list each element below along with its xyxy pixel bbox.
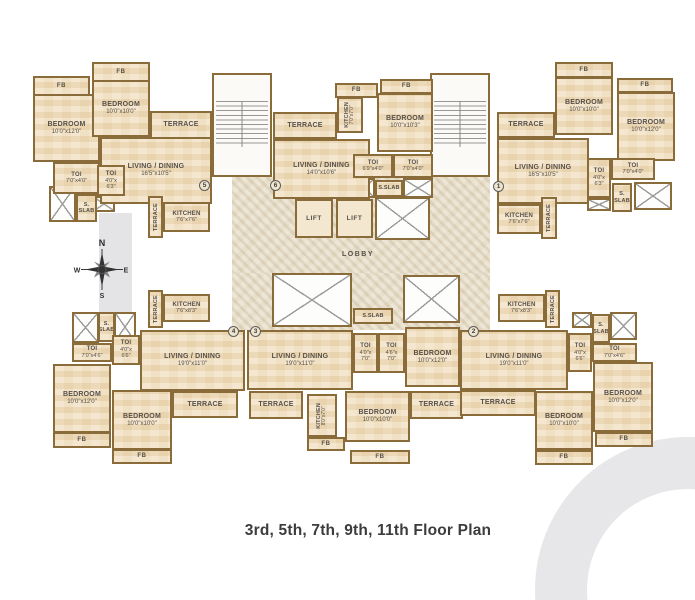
- f5-terrace-2-label: TERRACE: [152, 203, 158, 231]
- f5-bedroom-2: BEDROOM10'0"x10'0": [92, 80, 150, 137]
- f3-toi-2-label: TOI: [386, 343, 397, 350]
- core-duct-bottom-left: [272, 273, 352, 327]
- f5-sslab: S. SLAB: [76, 194, 97, 222]
- f4-terrace-2-stack: TERRACE: [152, 295, 158, 323]
- f6-kitchen-dims: 7'0"x7'0": [350, 105, 356, 124]
- f3-kitchen: KITCHEN8'0"x7'0": [307, 394, 337, 437]
- f6-fb-2-label: FB: [402, 83, 411, 90]
- f3-kitchen-stack: KITCHEN8'0"x7'0": [316, 403, 328, 429]
- f5-bedroom-2-label: BEDROOM: [102, 101, 140, 109]
- f1-terrace-2-label: TERRACE: [546, 204, 552, 232]
- f4-living-dims: 19'0"x11'0": [178, 361, 207, 368]
- f3-bedroom-2-dims: 10'0"x10'0": [363, 417, 393, 424]
- f3-bedroom-1-dims: 10'0"x12'0": [418, 358, 448, 365]
- f4-terrace-1-label: TERRACE: [187, 401, 222, 409]
- f3-toi-1: TOI4'0"x 7'0": [353, 333, 378, 373]
- f3-toi-2-dims: 4'6"x 7'0": [386, 350, 398, 362]
- f2-toi-1: TOI4'0"x 6'6": [568, 333, 592, 372]
- f1-bedroom-2-dims: 10'0"x12'0": [631, 127, 661, 134]
- flat-marker-1: 1: [493, 181, 504, 192]
- f6-duct-2: [403, 178, 433, 198]
- f2-fb-1: FB: [595, 432, 653, 447]
- f2-terrace-2-label: TERRACE: [549, 295, 555, 323]
- f2-kitchen-label: KITCHEN: [507, 302, 535, 309]
- f4-terrace-2-label: TERRACE: [152, 295, 158, 323]
- compass-e: E: [124, 268, 129, 275]
- f5-terrace-1-label: TERRACE: [163, 121, 198, 129]
- f3-terrace-1-label: TERRACE: [258, 401, 293, 409]
- f1-bedroom-2: BEDROOM10'0"x12'0": [617, 92, 675, 161]
- f6-kitchen: KITCHEN7'0"x7'0": [337, 97, 363, 133]
- f1-sslab-label: S. SLAB: [614, 191, 630, 203]
- f3-fb-1: FB: [307, 437, 345, 451]
- f1-duct-2: [587, 198, 611, 211]
- flat-marker-3: 3: [250, 326, 261, 337]
- f6-bedroom-dims: 10'0"x10'3": [390, 123, 420, 130]
- compass-w: W: [74, 268, 81, 275]
- f5-toi-1-label: TOI: [71, 172, 82, 179]
- f1-toi-2-label: TOI: [628, 163, 639, 170]
- core-duct-top: [375, 197, 430, 240]
- f6-toi-1-label: TOI: [368, 160, 379, 167]
- f2-bedroom-2-dims: 10'0"x10'0": [549, 421, 579, 428]
- f1-terrace-2-stack: TERRACE: [546, 204, 552, 232]
- f6-toi-2: TOI7'0"x4'0": [393, 154, 433, 178]
- f4-toi-1: TOI7'0"x4'6": [72, 343, 112, 362]
- f2-kitchen-dims: 7'6"x8'3": [511, 308, 532, 314]
- f3-toi-1-dims: 4'0"x 7'0": [360, 350, 372, 362]
- f3-terrace-1: TERRACE: [249, 391, 303, 419]
- f1-terrace-1-label: TERRACE: [508, 121, 543, 129]
- f4-fb-1: FB: [53, 432, 111, 448]
- f2-terrace-1-label: TERRACE: [480, 399, 515, 407]
- lift-1-label: LIFT: [306, 215, 322, 222]
- f3-bedroom-1: BEDROOM10'0"x12'0": [405, 327, 460, 387]
- f3-fb-2-label: FB: [375, 454, 384, 461]
- f4-bedroom-1: BEDROOM10'0"x12'0": [53, 364, 111, 433]
- f4-living: LIVING / DINING19'0"x11'0": [140, 330, 245, 391]
- f5-bedroom-2-dims: 10'0"x10'0": [106, 109, 136, 116]
- f2-sslab: S. SLAB: [592, 314, 610, 343]
- f2-bedroom-1-dims: 10'0"x12'0": [608, 398, 638, 405]
- compass-n: N: [99, 238, 106, 248]
- f2-bedroom-2-label: BEDROOM: [545, 413, 583, 421]
- f3-living-dims: 19'0"x11'0": [285, 361, 314, 368]
- f2-fb-2-label: FB: [559, 454, 568, 461]
- f5-toi-1-dims: 7'0"x4'0": [66, 178, 87, 184]
- f4-toi-2: TOI4'0"x 6'6": [112, 335, 140, 365]
- f4-toi-2-label: TOI: [121, 340, 132, 347]
- lift-1: LIFT: [295, 199, 333, 238]
- f1-kitchen-label: KITCHEN: [505, 213, 533, 220]
- f3-living-label: LIVING / DINING: [272, 353, 329, 361]
- f4-toi-2-dims: 4'0"x 6'6": [120, 347, 132, 359]
- f5-bedroom-1-label: BEDROOM: [48, 121, 86, 129]
- f4-bedroom-2-label: BEDROOM: [123, 413, 161, 421]
- floor-plan-canvas: LIFT LIFT LOBBY S.SLAB 1 2 3 4 5 6 N E S…: [0, 0, 695, 600]
- staircase-left: [212, 73, 272, 177]
- f6-toi-2-dims: 7'0"x4'0": [403, 166, 424, 172]
- f5-fb-2: FB: [92, 62, 150, 82]
- f6-fb-1-label: FB: [352, 87, 361, 94]
- f2-duct-1: [610, 312, 637, 340]
- f1-duct-1: [634, 182, 672, 210]
- f5-fb-2-label: FB: [116, 69, 125, 76]
- f2-bedroom-1-label: BEDROOM: [604, 390, 642, 398]
- f1-toi-1-label: TOI: [594, 168, 605, 175]
- f3-bedroom-1-label: BEDROOM: [414, 350, 452, 358]
- staircase-right: [430, 73, 490, 177]
- f6-sslab: S.SLAB: [375, 180, 403, 197]
- lift-2: LIFT: [336, 199, 373, 238]
- f2-living: LIVING / DINING19'0"x11'0": [460, 330, 568, 390]
- f6-bedroom-label: BEDROOM: [386, 115, 424, 123]
- f3-living: LIVING / DINING19'0"x11'0": [247, 330, 353, 390]
- f4-bedroom-2: BEDROOM10'0"x10'0": [112, 390, 172, 450]
- f1-toi-2-dims: 7'0"x4'0": [623, 169, 644, 175]
- f5-bedroom-1: BEDROOM10'0"x12'0": [33, 94, 100, 162]
- f2-duct-0: [572, 312, 592, 328]
- f2-terrace-1: TERRACE: [460, 390, 536, 416]
- core-duct-bottom-right: [403, 275, 460, 323]
- f5-kitchen: KITCHEN7'6"x7'6": [163, 202, 210, 232]
- compass-s: S: [100, 293, 105, 300]
- f5-fb-1-label: FB: [57, 83, 66, 90]
- f5-living-label: LIVING / DINING: [128, 163, 185, 171]
- f3-bedroom-2-label: BEDROOM: [359, 409, 397, 417]
- f1-fb-2: FB: [617, 78, 673, 93]
- f1-fb-2-label: FB: [640, 82, 649, 89]
- f2-bedroom-1: BEDROOM10'0"x12'0": [593, 362, 653, 432]
- f1-bedroom-1-label: BEDROOM: [565, 99, 603, 107]
- f5-toi-1: TOI7'0"x4'0": [53, 162, 100, 194]
- f4-fb-2: FB: [112, 449, 172, 464]
- f2-toi-2: TOI7'0"x4'6": [592, 343, 637, 362]
- staircase-left-treads: [216, 101, 268, 147]
- f1-bedroom-1-dims: 10'0"x10'0": [569, 107, 599, 114]
- f6-living-label: LIVING / DINING: [293, 162, 350, 170]
- f6-bedroom: BEDROOM10'0"x10'3": [377, 93, 433, 152]
- f2-living-label: LIVING / DINING: [486, 353, 543, 361]
- f1-bedroom-2-label: BEDROOM: [627, 119, 665, 127]
- f1-living: LIVING / DINING16'5"x10'5": [497, 138, 589, 204]
- staircase-right-treads: [434, 101, 486, 147]
- f1-kitchen: KITCHEN7'6"x7'6": [497, 204, 541, 234]
- f1-terrace-1: TERRACE: [497, 112, 555, 138]
- f1-fb-1: FB: [555, 62, 613, 78]
- flat-marker-5: 5: [199, 180, 210, 191]
- f4-fb-1-label: FB: [77, 437, 86, 444]
- f5-toi-2-label: TOI: [106, 171, 117, 178]
- f5-sslab-label: S. SLAB: [79, 202, 95, 214]
- f6-toi-1-dims: 6'9"x4'0": [363, 166, 384, 172]
- f1-toi-2: TOI7'0"x4'0": [611, 158, 655, 180]
- f6-toi-2-label: TOI: [408, 160, 419, 167]
- f3-toi-2: TOI4'6"x 7'0": [378, 333, 405, 373]
- f4-bedroom-1-label: BEDROOM: [63, 391, 101, 399]
- f5-terrace-1: TERRACE: [150, 111, 212, 139]
- f4-toi-1-dims: 7'0"x4'6": [82, 353, 103, 359]
- f6-living-dims: 14'0"x10'6": [307, 170, 337, 177]
- f1-toi-1: TOI4'0"x 6'3": [587, 158, 611, 198]
- f5-fb-1: FB: [33, 76, 90, 96]
- f4-terrace-1: TERRACE: [172, 391, 238, 418]
- f4-kitchen-dims: 7'6"x8'3": [176, 308, 197, 314]
- f3-toi-1-label: TOI: [360, 343, 371, 350]
- f6-toi-1: TOI6'9"x4'0": [353, 154, 393, 178]
- flat-marker-6: 6: [270, 180, 281, 191]
- f4-bedroom-1-dims: 10'0"x12'0": [67, 399, 97, 406]
- f4-toi-1-label: TOI: [87, 346, 98, 353]
- f4-kitchen-label: KITCHEN: [172, 302, 200, 309]
- f1-terrace-2: TERRACE: [541, 197, 557, 239]
- f1-sslab: S. SLAB: [612, 183, 632, 212]
- f3-terrace-2: TERRACE: [410, 391, 463, 419]
- f4-duct-1: [72, 312, 99, 343]
- f6-sslab-label: S.SLAB: [378, 185, 399, 191]
- f2-fb-2: FB: [535, 450, 593, 465]
- f6-kitchen-stack: KITCHEN7'0"x7'0": [344, 102, 356, 128]
- core-s-slab: S.SLAB: [353, 308, 393, 324]
- flat-marker-4: 4: [228, 326, 239, 337]
- f3-fb-2: FB: [350, 450, 410, 464]
- f3-fb-1-label: FB: [321, 441, 330, 448]
- f2-kitchen: KITCHEN7'6"x8'3": [498, 294, 545, 322]
- f2-living-dims: 19'0"x11'0": [499, 361, 528, 368]
- f4-fb-2-label: FB: [137, 453, 146, 460]
- f5-terrace-2: TERRACE: [148, 196, 163, 238]
- f4-bedroom-2-dims: 10'0"x10'0": [127, 421, 157, 428]
- f5-bedroom-1-dims: 10'0"x12'0": [52, 129, 82, 136]
- f2-terrace-2: TERRACE: [545, 290, 560, 328]
- f3-kitchen-dims: 8'0"x7'0": [322, 406, 328, 425]
- f5-terrace-2-stack: TERRACE: [152, 203, 158, 231]
- f2-toi-2-dims: 7'0"x4'6": [604, 353, 625, 359]
- f3-bedroom-2: BEDROOM10'0"x10'0": [345, 391, 410, 442]
- f1-toi-1-dims: 4'0"x 6'3": [593, 175, 605, 187]
- f4-kitchen: KITCHEN7'6"x8'3": [163, 294, 210, 322]
- f2-sslab-label: S. SLAB: [593, 322, 609, 334]
- f4-terrace-2: TERRACE: [148, 290, 163, 328]
- f6-terrace-label: TERRACE: [287, 122, 322, 130]
- f5-toi-2: TOI4'0"x 6'3": [97, 165, 125, 196]
- page-title: 3rd, 5th, 7th, 9th, 11th Floor Plan: [61, 522, 675, 540]
- core-s-slab-label: S.SLAB: [362, 313, 383, 319]
- f4-living-label: LIVING / DINING: [164, 353, 221, 361]
- f1-living-label: LIVING / DINING: [515, 164, 572, 172]
- f5-toi-2-dims: 4'0"x 6'3": [105, 178, 117, 190]
- f1-kitchen-dims: 7'6"x7'6": [509, 219, 530, 225]
- f5-kitchen-dims: 7'6"x7'6": [176, 217, 197, 223]
- f1-living-dims: 16'5"x10'5": [528, 172, 558, 179]
- f6-terrace: TERRACE: [273, 112, 337, 139]
- f5-living-dims: 16'5"x10'5": [141, 171, 171, 178]
- f2-toi-1-label: TOI: [575, 343, 586, 350]
- flat-marker-2: 2: [468, 326, 479, 337]
- lift-2-label: LIFT: [347, 215, 363, 222]
- f6-fb-2: FB: [380, 79, 433, 94]
- f2-fb-1-label: FB: [619, 436, 628, 443]
- f2-bedroom-2: BEDROOM10'0"x10'0": [535, 391, 593, 450]
- f2-toi-2-label: TOI: [609, 346, 620, 353]
- lobby-label: LOBBY: [330, 251, 386, 258]
- f5-kitchen-label: KITCHEN: [172, 211, 200, 218]
- f3-terrace-2-label: TERRACE: [419, 401, 454, 409]
- compass-rose-icon: N E S W: [72, 236, 132, 300]
- f6-fb-1: FB: [335, 83, 378, 98]
- f2-toi-1-dims: 4'0"x 6'6": [574, 350, 586, 362]
- f1-fb-1-label: FB: [579, 67, 588, 74]
- f2-terrace-2-stack: TERRACE: [549, 295, 555, 323]
- f1-bedroom-1: BEDROOM10'0"x10'0": [555, 77, 613, 135]
- f4-sslab-label: S. SLAB: [99, 321, 115, 333]
